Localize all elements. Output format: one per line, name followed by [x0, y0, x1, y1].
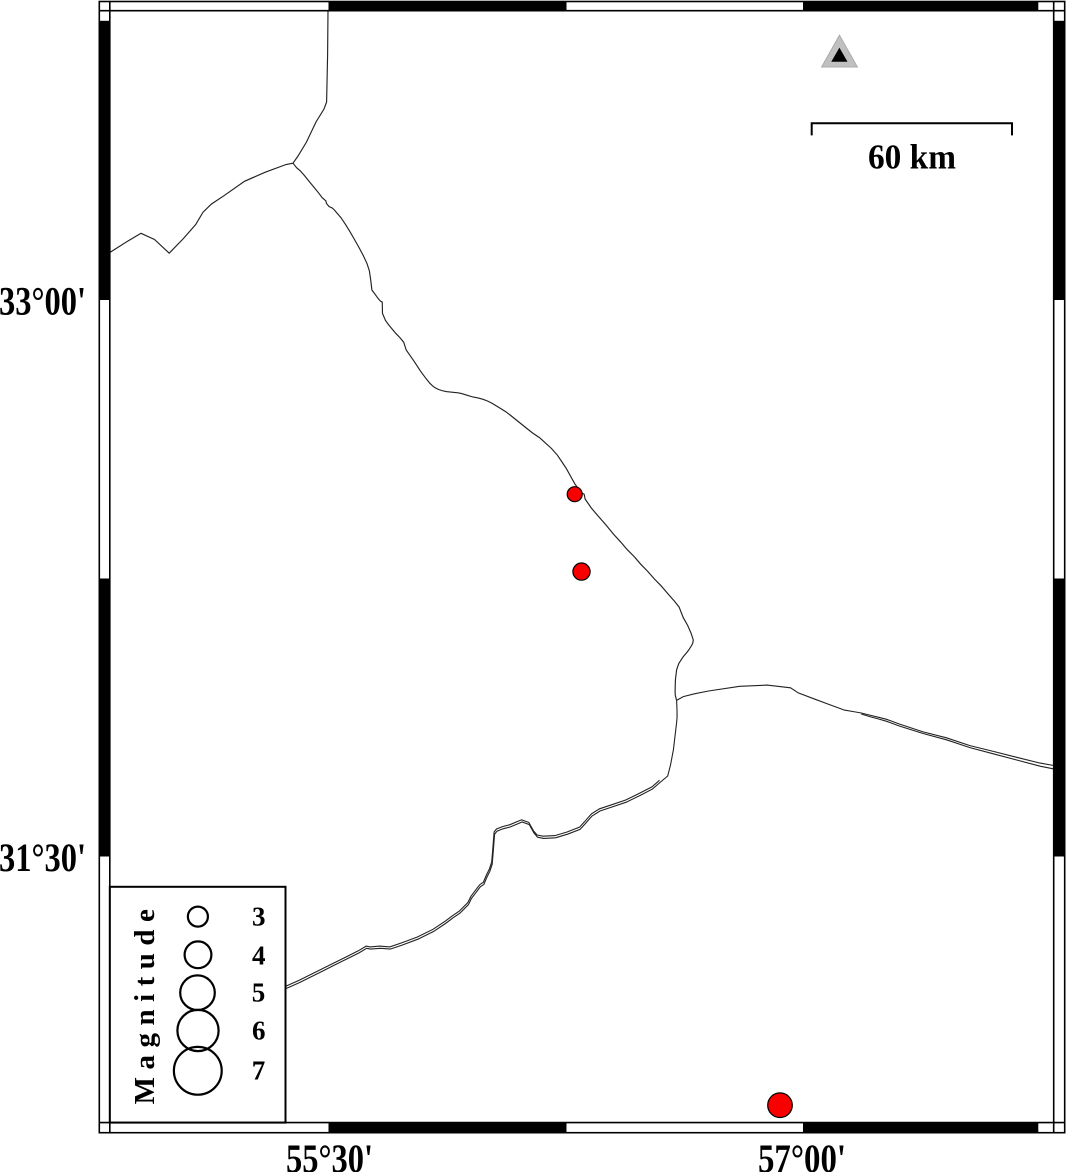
svg-text:7: 7 — [252, 1056, 266, 1086]
svg-text:33°00': 33°00' — [0, 279, 86, 324]
svg-text:5: 5 — [252, 978, 266, 1008]
svg-text:4: 4 — [252, 941, 266, 971]
svg-text:31°30': 31°30' — [0, 835, 86, 880]
svg-text:55°30': 55°30' — [286, 1136, 373, 1172]
svg-text:Magnitude: Magnitude — [129, 902, 161, 1105]
svg-text:3: 3 — [252, 902, 266, 932]
svg-text:6: 6 — [252, 1016, 266, 1046]
svg-text:57°00': 57°00' — [758, 1136, 846, 1172]
svg-text:60 km: 60 km — [868, 138, 956, 177]
